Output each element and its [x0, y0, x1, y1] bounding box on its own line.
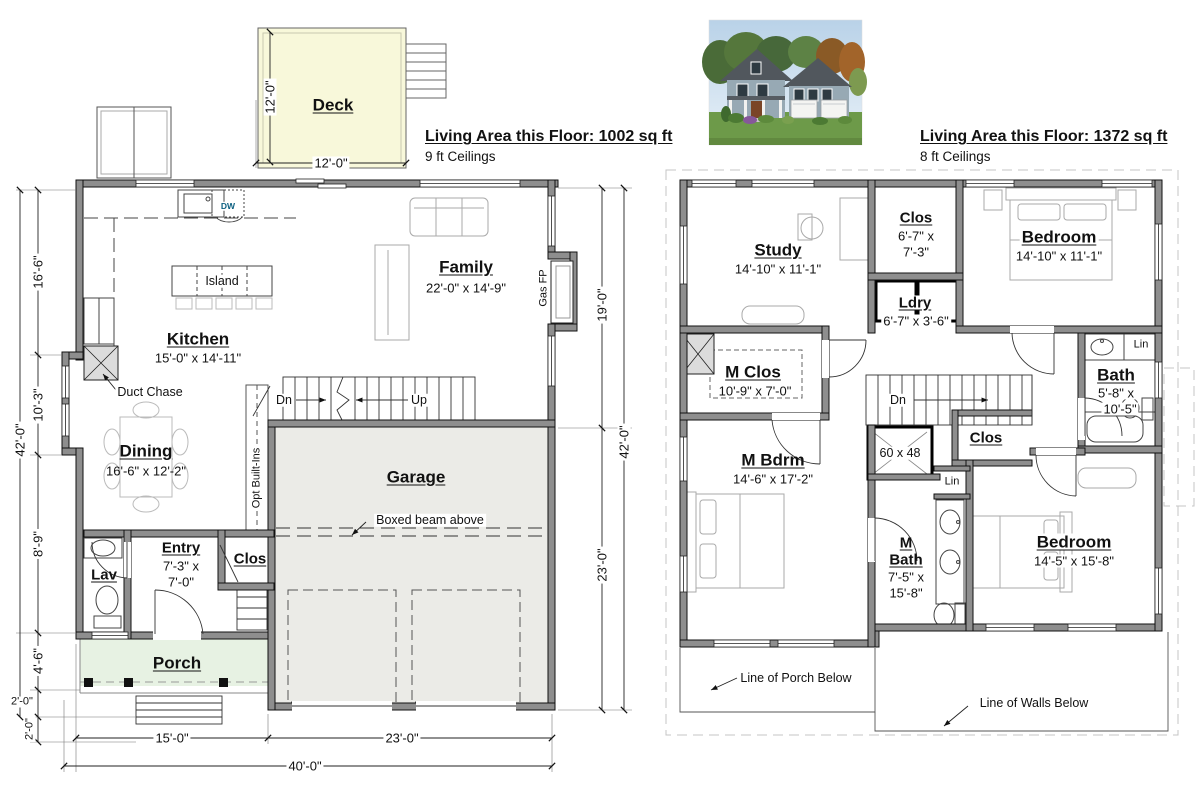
floorplan-page: Living Area this Floor: 1002 sq ft 9 ft …: [0, 0, 1204, 795]
room-label-bath: Bath: [1095, 367, 1137, 384]
dim-family-size: 22'-0" x 14'-9": [426, 282, 506, 295]
label-island: Island: [203, 275, 240, 288]
dim-m-clos-size: 10'-9" x 7'-0": [717, 385, 794, 398]
room-label-clos: Clos: [234, 552, 267, 567]
label-stairs-dn: Dn: [274, 394, 294, 407]
dim-left-42-0: 42'-0": [14, 421, 27, 458]
room-label-deck: Deck: [313, 97, 354, 114]
dim-bath-2: 10'-5": [1101, 403, 1138, 416]
label-gas-fp: Gas FP: [539, 269, 550, 306]
annotation-line-of-porch-below: Line of Porch Below: [738, 672, 853, 685]
label-lin-mid: Lin: [943, 477, 962, 488]
dim-m-bdrm-size: 14'-6" x 17'-2": [733, 473, 813, 486]
text-labels: Deck12'-0"12'-0"Family22'-0" x 14'-9"Gas…: [0, 0, 1204, 795]
dim-right-42-0: 42'-0": [618, 423, 631, 460]
dim-bottom-40-0: 40'-0": [286, 760, 323, 773]
dim-dining-size: 16'-6" x 12'-2": [106, 465, 186, 478]
room-label-dining: Dining: [120, 443, 173, 460]
room-label-kitchen: Kitchen: [167, 331, 229, 348]
room-label-bedroom-tr: Bedroom: [1020, 229, 1099, 246]
dim-bedroom-br-size: 14'-5" x 15'-8": [1032, 555, 1116, 568]
dim-right-19-0: 19'-0": [596, 286, 609, 323]
dim-clos-top-2: 7'-3": [903, 246, 929, 259]
annotation-line-of-walls-below: Line of Walls Below: [978, 697, 1091, 710]
label-shower-size: 60 x 48: [877, 447, 922, 460]
room-label-m-bath-2: Bath: [889, 553, 922, 568]
dim-deck-height: 12'-0": [264, 78, 277, 115]
room-label-m-bdrm: M Bdrm: [741, 452, 804, 469]
dim-right-23-0: 23'-0": [596, 546, 609, 583]
dim-left-2-0-a: 2'-0": [9, 697, 35, 708]
dim-kitchen-size: 15'-0" x 14'-11": [155, 352, 241, 365]
room-label-m-bath-1: M: [900, 536, 913, 551]
room-label-clos-mid: Clos: [968, 431, 1005, 446]
room-label-m-clos: M Clos: [723, 364, 783, 381]
annotation-duct-chase: Duct Chase: [115, 386, 184, 399]
dim-m-bath-2: 15'-8": [889, 587, 922, 600]
dim-study-size: 14'-10" x 11'-1": [735, 263, 821, 276]
dim-entry-size-2: 7'-0": [168, 576, 194, 589]
dim-bath-1: 5'-8" x: [1096, 387, 1136, 400]
dim-entry-size-1: 7'-3" x: [163, 560, 199, 573]
room-label-entry: Entry: [162, 541, 200, 556]
room-label-study: Study: [754, 242, 801, 259]
dim-left-8-9: 8'-9": [32, 529, 45, 559]
room-label-bedroom-br: Bedroom: [1035, 534, 1114, 551]
room-label-clos-top: Clos: [900, 211, 933, 226]
dim-deck-width: 12'-0": [312, 157, 349, 170]
label-stairs2-dn: Dn: [888, 394, 908, 407]
room-label-porch: Porch: [153, 655, 201, 672]
dim-clos-top-1: 6'-7" x: [898, 230, 934, 243]
label-dw: DW: [219, 202, 237, 211]
label-opt-built-ins: Opt Built-Ins: [252, 446, 263, 511]
dim-left-4-6: 4'-6": [32, 646, 45, 676]
label-lin-right: Lin: [1132, 340, 1151, 351]
room-label-ldry: Ldry: [897, 296, 934, 311]
dim-left-10-3: 10'-3": [32, 386, 45, 423]
room-label-family: Family: [439, 259, 493, 276]
room-label-garage: Garage: [387, 469, 446, 486]
dim-bottom-23-0: 23'-0": [383, 732, 420, 745]
room-label-lav: Lav: [91, 568, 117, 583]
dim-left-2-0-b: 2'-0": [25, 716, 36, 742]
dim-m-bath-1: 7'-5" x: [888, 571, 924, 584]
dim-bedroom-tr-size: 14'-10" x 11'-1": [1014, 250, 1104, 263]
label-stairs-up: Up: [409, 394, 429, 407]
annotation-boxed-beam: Boxed beam above: [374, 514, 486, 527]
dim-bottom-15-0: 15'-0": [153, 732, 190, 745]
dim-ldry-size: 6'-7" x 3'-6": [881, 315, 951, 328]
dim-left-16-6: 16'-6": [32, 253, 45, 290]
